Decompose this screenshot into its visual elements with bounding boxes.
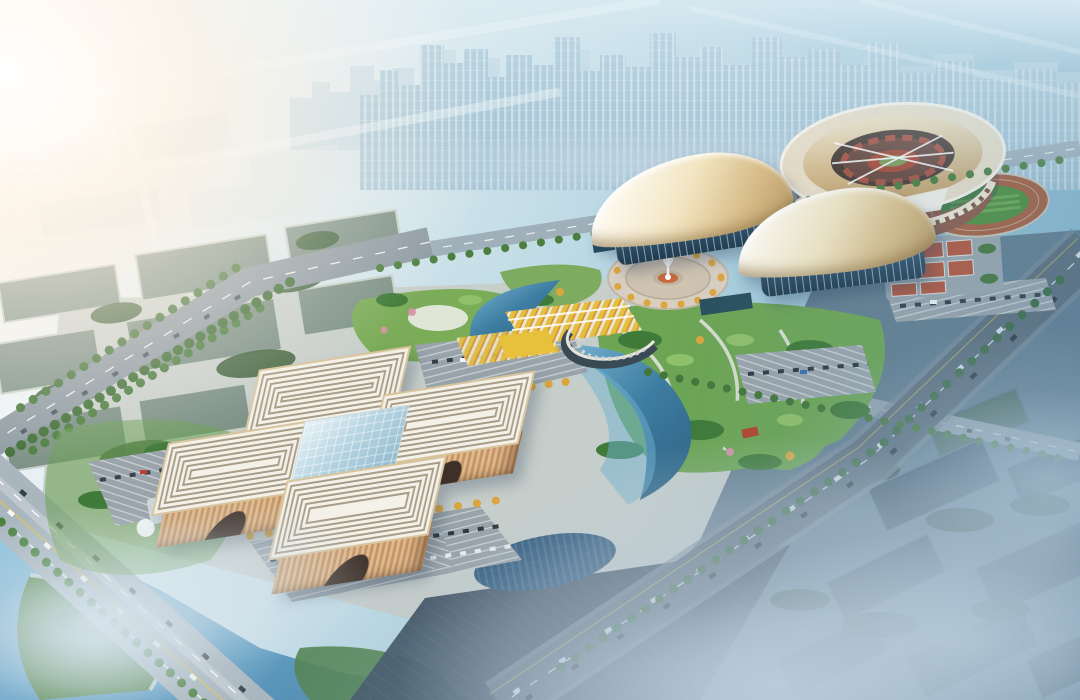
- scene-canvas: Aerial architectural rendering — civic c…: [0, 0, 1080, 700]
- aerial-rendering: Aerial architectural rendering — civic c…: [0, 0, 1080, 700]
- sports-courts: Outdoor red sports courts: [882, 232, 1004, 300]
